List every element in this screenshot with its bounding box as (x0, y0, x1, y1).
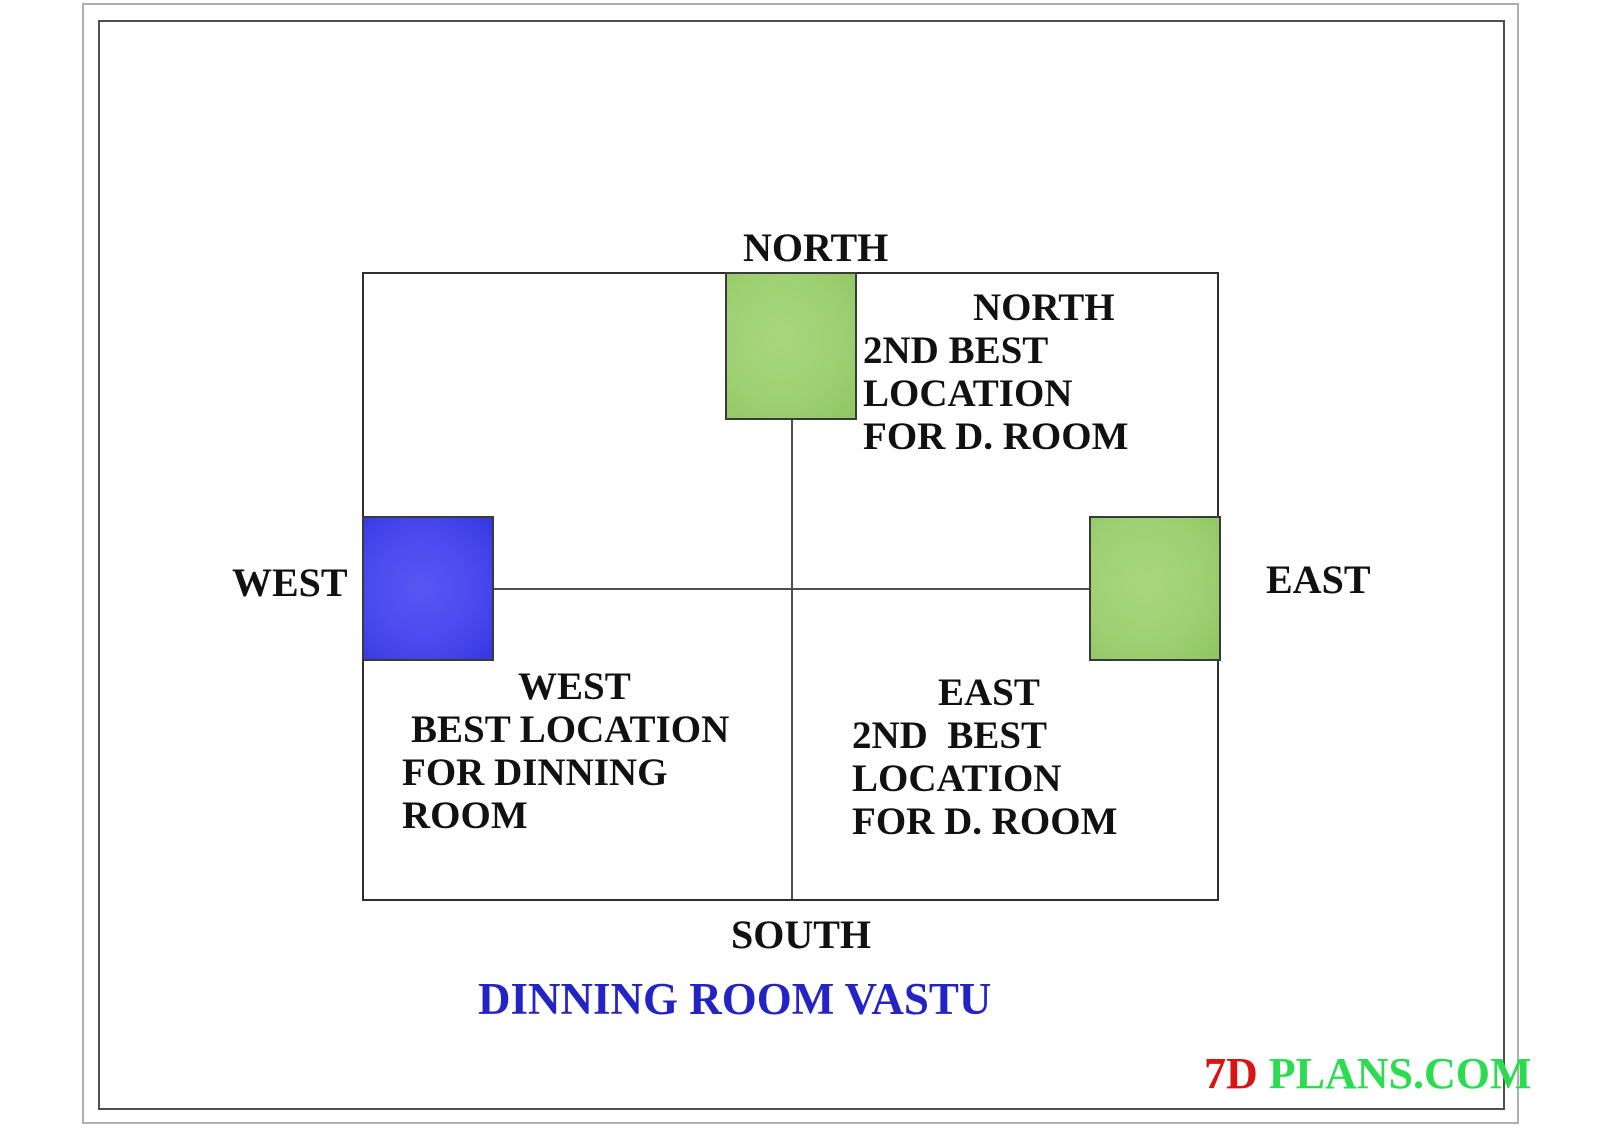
note-line: FOR D. ROOM (852, 800, 1117, 843)
west-location-box (362, 516, 494, 661)
brand-watermark: 7D PLANS.COM (1204, 1052, 1532, 1096)
note-line: 2ND BEST (852, 714, 1117, 757)
vastu-diagram-canvas: NORTH SOUTH WEST EAST NORTH 2ND BEST LOC… (0, 0, 1600, 1130)
note-line: BEST LOCATION (402, 708, 729, 751)
south-label: SOUTH (731, 915, 871, 955)
north-label: NORTH (743, 228, 888, 268)
note-line: NORTH (863, 286, 1128, 329)
note-line: ROOM (402, 794, 729, 837)
note-line: FOR DINNING (402, 751, 729, 794)
note-line: FOR D. ROOM (863, 415, 1128, 458)
note-line: LOCATION (863, 372, 1128, 415)
diagram-title: DINNING ROOM VASTU (478, 977, 991, 1022)
east-location-box (1089, 516, 1221, 661)
west-label: WEST (232, 563, 348, 603)
north-location-box (725, 272, 857, 420)
note-line: EAST (852, 671, 1117, 714)
west-quadrant-note: WEST BEST LOCATION FOR DINNING ROOM (402, 665, 729, 837)
north-quadrant-note: NORTH 2ND BEST LOCATION FOR D. ROOM (863, 286, 1128, 458)
brand-suffix: PLANS.COM (1258, 1049, 1532, 1098)
note-line: 2ND BEST (863, 329, 1128, 372)
east-label: EAST (1266, 560, 1371, 600)
note-line: WEST (402, 665, 729, 708)
brand-prefix: 7D (1204, 1049, 1258, 1098)
east-quadrant-note: EAST 2ND BEST LOCATION FOR D. ROOM (852, 671, 1117, 843)
note-line: LOCATION (852, 757, 1117, 800)
